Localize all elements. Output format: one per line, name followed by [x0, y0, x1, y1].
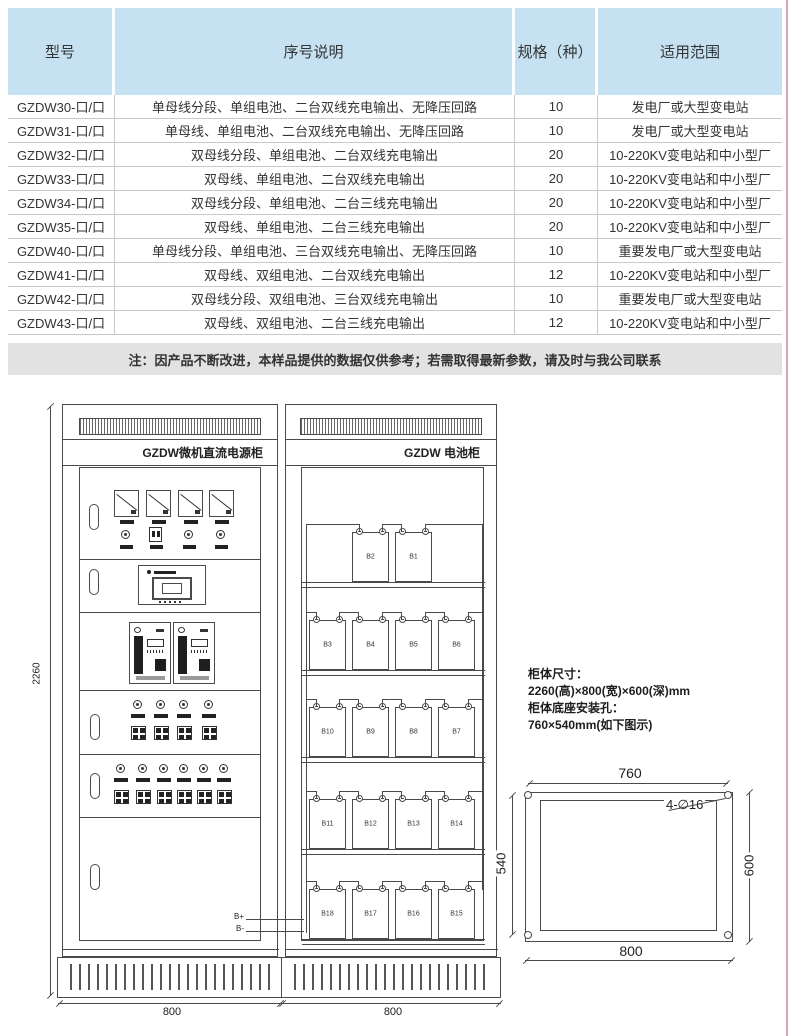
wire-loop: [339, 699, 359, 707]
frame-line: [63, 949, 279, 950]
indicator-label-strip: [183, 545, 196, 549]
wire-stub: [425, 524, 426, 532]
charger-display: [191, 639, 208, 647]
meter-needle: [148, 494, 169, 511]
frame-line: [286, 949, 498, 950]
monitor-screen: [152, 577, 192, 600]
door-handle: [90, 864, 100, 890]
mounting-top-dim-line: [528, 783, 728, 784]
panel-divider: [80, 690, 260, 691]
meter-corner-box: [195, 510, 200, 514]
battery-cabinet-door: B2B1B3B4B5B6B10B9B8B7B11B12B13B14B18B17B…: [301, 467, 484, 941]
page-edge-line: [786, 0, 788, 1036]
wire-stub: [316, 791, 317, 799]
indicator-dot: [182, 767, 185, 770]
charger-logo: [134, 627, 141, 633]
indicator-label-strip: [120, 545, 133, 549]
height-dim-label: 2260: [32, 660, 43, 686]
wire-lead-right: [468, 699, 482, 700]
b-plus-wire: [246, 919, 304, 920]
monitor-module: [138, 565, 206, 605]
power-cabinet-base: [57, 957, 283, 998]
indicator-dot: [182, 703, 185, 706]
battery: B2: [352, 532, 389, 582]
mounting-hole: [524, 931, 532, 939]
circuit-breaker: [202, 726, 217, 740]
battery-label: B3: [310, 642, 345, 649]
vent-grille-top: [79, 418, 261, 435]
battery: B18: [309, 889, 346, 939]
info-line-4: 760×540mm(如下图示): [528, 717, 768, 734]
wire-loop: [382, 612, 402, 620]
power-width-dim-line: [58, 1003, 282, 1004]
breaker-label-strip: [177, 714, 191, 718]
circuit-breaker: [197, 790, 212, 804]
meter-corner-box: [131, 510, 136, 514]
mounting-bottom-dim-label: 800: [611, 943, 651, 959]
wire-loop: [339, 791, 359, 799]
wire-lead-left: [306, 612, 316, 613]
battery-label: B18: [310, 911, 345, 918]
wire-loop: [425, 699, 445, 707]
panel-divider: [80, 754, 260, 755]
wire-lead-right: [468, 612, 482, 613]
battery-label: B16: [396, 911, 431, 918]
wire-loop: [425, 612, 445, 620]
vent-grille-base: [294, 964, 488, 990]
mounting-hole: [724, 931, 732, 939]
battery-label: B8: [396, 729, 431, 736]
battery-label: B15: [439, 911, 474, 918]
circuit-breaker: [177, 726, 192, 740]
battery-cabinet-base: [281, 957, 501, 998]
battery: B3: [309, 620, 346, 670]
meter-corner-box: [226, 510, 231, 514]
meter-needle: [180, 494, 201, 511]
technical-drawing: GZDW微机直流电源柜 GZDW 电池柜 B2B1B3B4B5B6B10B9B8…: [0, 0, 790, 1036]
mounting-inner-rect: [540, 800, 717, 931]
shelf-platform: [302, 582, 485, 588]
indicator-light: [199, 764, 208, 773]
indicator-light: [184, 530, 193, 539]
charger-heatsink-bar: [178, 636, 187, 674]
shelf-platform: [302, 670, 485, 676]
monitor-key-row: [159, 601, 183, 603]
wire-lead-left: [306, 699, 316, 700]
indicator-dot: [136, 703, 139, 706]
switch-dot: [152, 531, 155, 537]
wire-stub: [468, 881, 469, 889]
indicator-dot: [222, 767, 225, 770]
battery: B7: [438, 707, 475, 757]
battery: B9: [352, 707, 389, 757]
indicator-dot: [187, 533, 190, 536]
selector-switch: [149, 527, 162, 542]
b-plus-label: B+: [222, 912, 246, 921]
indicator-dot: [159, 703, 162, 706]
wire-lead-left: [306, 524, 359, 525]
battery-label: B11: [310, 821, 345, 828]
wire-loop: [425, 881, 445, 889]
monitor-screen-inner: [162, 583, 182, 594]
circuit-breaker: [131, 726, 146, 740]
battery-label: B7: [439, 729, 474, 736]
indicator-label-strip: [150, 545, 163, 549]
mounting-left-dim-line: [512, 795, 513, 935]
battery-cabinet-frame: GZDW 电池柜 B2B1B3B4B5B6B10B9B8B7B11B12B13B…: [285, 404, 497, 957]
battery: B1: [395, 532, 432, 582]
charger-module: [173, 622, 215, 684]
wire-stub: [468, 612, 469, 620]
charger-logo: [178, 627, 185, 633]
breaker-label-strip: [202, 714, 216, 718]
charger-led-row: [191, 650, 207, 653]
switch-dot: [157, 531, 160, 537]
breaker-label-strip: [157, 778, 171, 782]
wire-lead-left: [306, 791, 316, 792]
wire-loop: [382, 524, 402, 532]
info-line-3: 柜体底座安装孔：: [528, 700, 768, 717]
breaker-label-strip: [217, 778, 231, 782]
indicator-light: [121, 530, 130, 539]
wire-stub: [468, 699, 469, 707]
wire-stub: [316, 612, 317, 620]
b-minus-label: B-: [222, 924, 246, 933]
battery: B8: [395, 707, 432, 757]
breaker-label-strip: [114, 778, 128, 782]
battery: B14: [438, 799, 475, 849]
power-cabinet-title-band: GZDW微机直流电源柜: [63, 439, 277, 466]
meter-gauge: [146, 490, 171, 517]
mounting-right-dim-label: 600: [741, 853, 756, 879]
catalog-page: 型号序号说明规格（种）适用范围 GZDW30-口/口单母线分段、单组电池、二台双…: [0, 0, 790, 1036]
power-cabinet-frame: GZDW微机直流电源柜: [62, 404, 278, 957]
mounting-bottom-dim-line: [525, 960, 733, 961]
indicator-light: [156, 700, 165, 709]
charger-heatsink-bar: [134, 636, 143, 674]
battery: B15: [438, 889, 475, 939]
battery-label: B9: [353, 729, 388, 736]
power-cabinet-door: [79, 467, 261, 941]
shelf-platform: [302, 757, 485, 763]
meter-gauge: [178, 490, 203, 517]
mounting-left-dim-label: 540: [493, 851, 508, 877]
battery: B13: [395, 799, 432, 849]
indicator-dot: [219, 533, 222, 536]
battery: B11: [309, 799, 346, 849]
battery-label: B5: [396, 642, 431, 649]
indicator-dot: [141, 767, 144, 770]
meter-label-strip: [184, 520, 198, 524]
wire-stub: [359, 524, 360, 532]
circuit-breaker: [154, 726, 169, 740]
charger-display: [147, 639, 164, 647]
wire-stub: [316, 881, 317, 889]
circuit-breaker: [177, 790, 192, 804]
indicator-light: [133, 700, 142, 709]
b-minus-wire: [246, 931, 304, 932]
battery-width-dim-label: 800: [377, 1006, 409, 1018]
mounting-hole: [524, 791, 532, 799]
meter-needle: [211, 494, 232, 511]
power-width-dim-label: 800: [156, 1006, 188, 1018]
battery: B12: [352, 799, 389, 849]
wire-stub: [468, 791, 469, 799]
wire-loop: [382, 791, 402, 799]
indicator-dot: [119, 767, 122, 770]
panel-divider: [80, 612, 260, 613]
vent-grille-top: [300, 418, 482, 435]
battery-label: B1: [396, 554, 431, 561]
wire-stub: [316, 699, 317, 707]
mounting-top-dim-label: 760: [610, 765, 650, 781]
battery-label: B4: [353, 642, 388, 649]
wire-loop: [339, 881, 359, 889]
indicator-light: [204, 700, 213, 709]
door-handle: [90, 714, 100, 740]
circuit-breaker: [136, 790, 151, 804]
indicator-light: [216, 530, 225, 539]
circuit-breaker: [114, 790, 129, 804]
battery-label: B6: [439, 642, 474, 649]
battery: B4: [352, 620, 389, 670]
battery: B16: [395, 889, 432, 939]
info-line-1: 柜体尺寸：: [528, 666, 768, 683]
vent-grille-base: [70, 964, 270, 990]
charger-bottom-strip: [180, 676, 209, 680]
charger-block: [199, 659, 210, 671]
wire-bus-right: [482, 524, 483, 890]
wire-loop: [382, 881, 402, 889]
shelf-platform: [302, 939, 485, 945]
info-line-2: 2260(高)×800(宽)×600(深)mm: [528, 683, 768, 700]
wire-loop: [382, 699, 402, 707]
battery-label: B14: [439, 821, 474, 828]
battery-label: B12: [353, 821, 388, 828]
meter-gauge: [114, 490, 139, 517]
door-handle: [89, 569, 99, 595]
shelf-platform: [302, 849, 485, 855]
charger-dash: [156, 629, 164, 632]
panel-divider: [80, 559, 260, 560]
battery: B6: [438, 620, 475, 670]
indicator-dot: [207, 703, 210, 706]
charger-dash: [200, 629, 208, 632]
monitor-brand-strip: [154, 571, 176, 574]
wire-lead-right: [425, 524, 482, 525]
meter-label-strip: [120, 520, 134, 524]
battery: B5: [395, 620, 432, 670]
power-cabinet-title: GZDW微机直流电源柜: [142, 444, 263, 461]
meter-needle: [116, 494, 137, 511]
indicator-light: [138, 764, 147, 773]
battery-label: B2: [353, 554, 388, 561]
battery: B10: [309, 707, 346, 757]
battery: B17: [352, 889, 389, 939]
charger-module: [129, 622, 171, 684]
panel-divider: [80, 817, 260, 818]
breaker-label-strip: [197, 778, 211, 782]
breaker-label-strip: [131, 714, 145, 718]
meter-gauge: [209, 490, 234, 517]
indicator-light: [179, 700, 188, 709]
meter-label-strip: [215, 520, 229, 524]
meter-corner-box: [163, 510, 168, 514]
indicator-light: [179, 764, 188, 773]
breaker-label-strip: [177, 778, 191, 782]
indicator-dot: [162, 767, 165, 770]
charger-block: [155, 659, 166, 671]
circuit-breaker: [157, 790, 172, 804]
battery-width-dim-line: [281, 1003, 501, 1004]
height-dim-line: [50, 406, 51, 996]
battery-cabinet-title-band: GZDW 电池柜: [286, 439, 496, 466]
wire-loop: [339, 612, 359, 620]
indicator-dot: [202, 767, 205, 770]
indicator-light: [116, 764, 125, 773]
indicator-light: [159, 764, 168, 773]
indicator-light: [219, 764, 228, 773]
breaker-label-strip: [154, 714, 168, 718]
battery-cabinet-title: GZDW 电池柜: [404, 444, 480, 461]
breaker-label-strip: [136, 778, 150, 782]
cabinet-info-text: 柜体尺寸： 2260(高)×800(宽)×600(深)mm 柜体底座安装孔： 7…: [528, 666, 768, 734]
wire-lead-right: [468, 791, 482, 792]
meter-label-strip: [152, 520, 166, 524]
wire-lead-left: [306, 881, 316, 882]
battery-label: B13: [396, 821, 431, 828]
charger-bottom-strip: [136, 676, 165, 680]
wire-loop: [425, 791, 445, 799]
door-handle: [89, 504, 99, 530]
charger-led-row: [147, 650, 163, 653]
indicator-label-strip: [215, 545, 228, 549]
circuit-breaker: [217, 790, 232, 804]
wire-lead-right: [468, 881, 482, 882]
monitor-led: [147, 570, 151, 574]
door-handle: [90, 773, 100, 799]
battery-label: B10: [310, 729, 345, 736]
battery-label: B17: [353, 911, 388, 918]
indicator-dot: [124, 533, 127, 536]
